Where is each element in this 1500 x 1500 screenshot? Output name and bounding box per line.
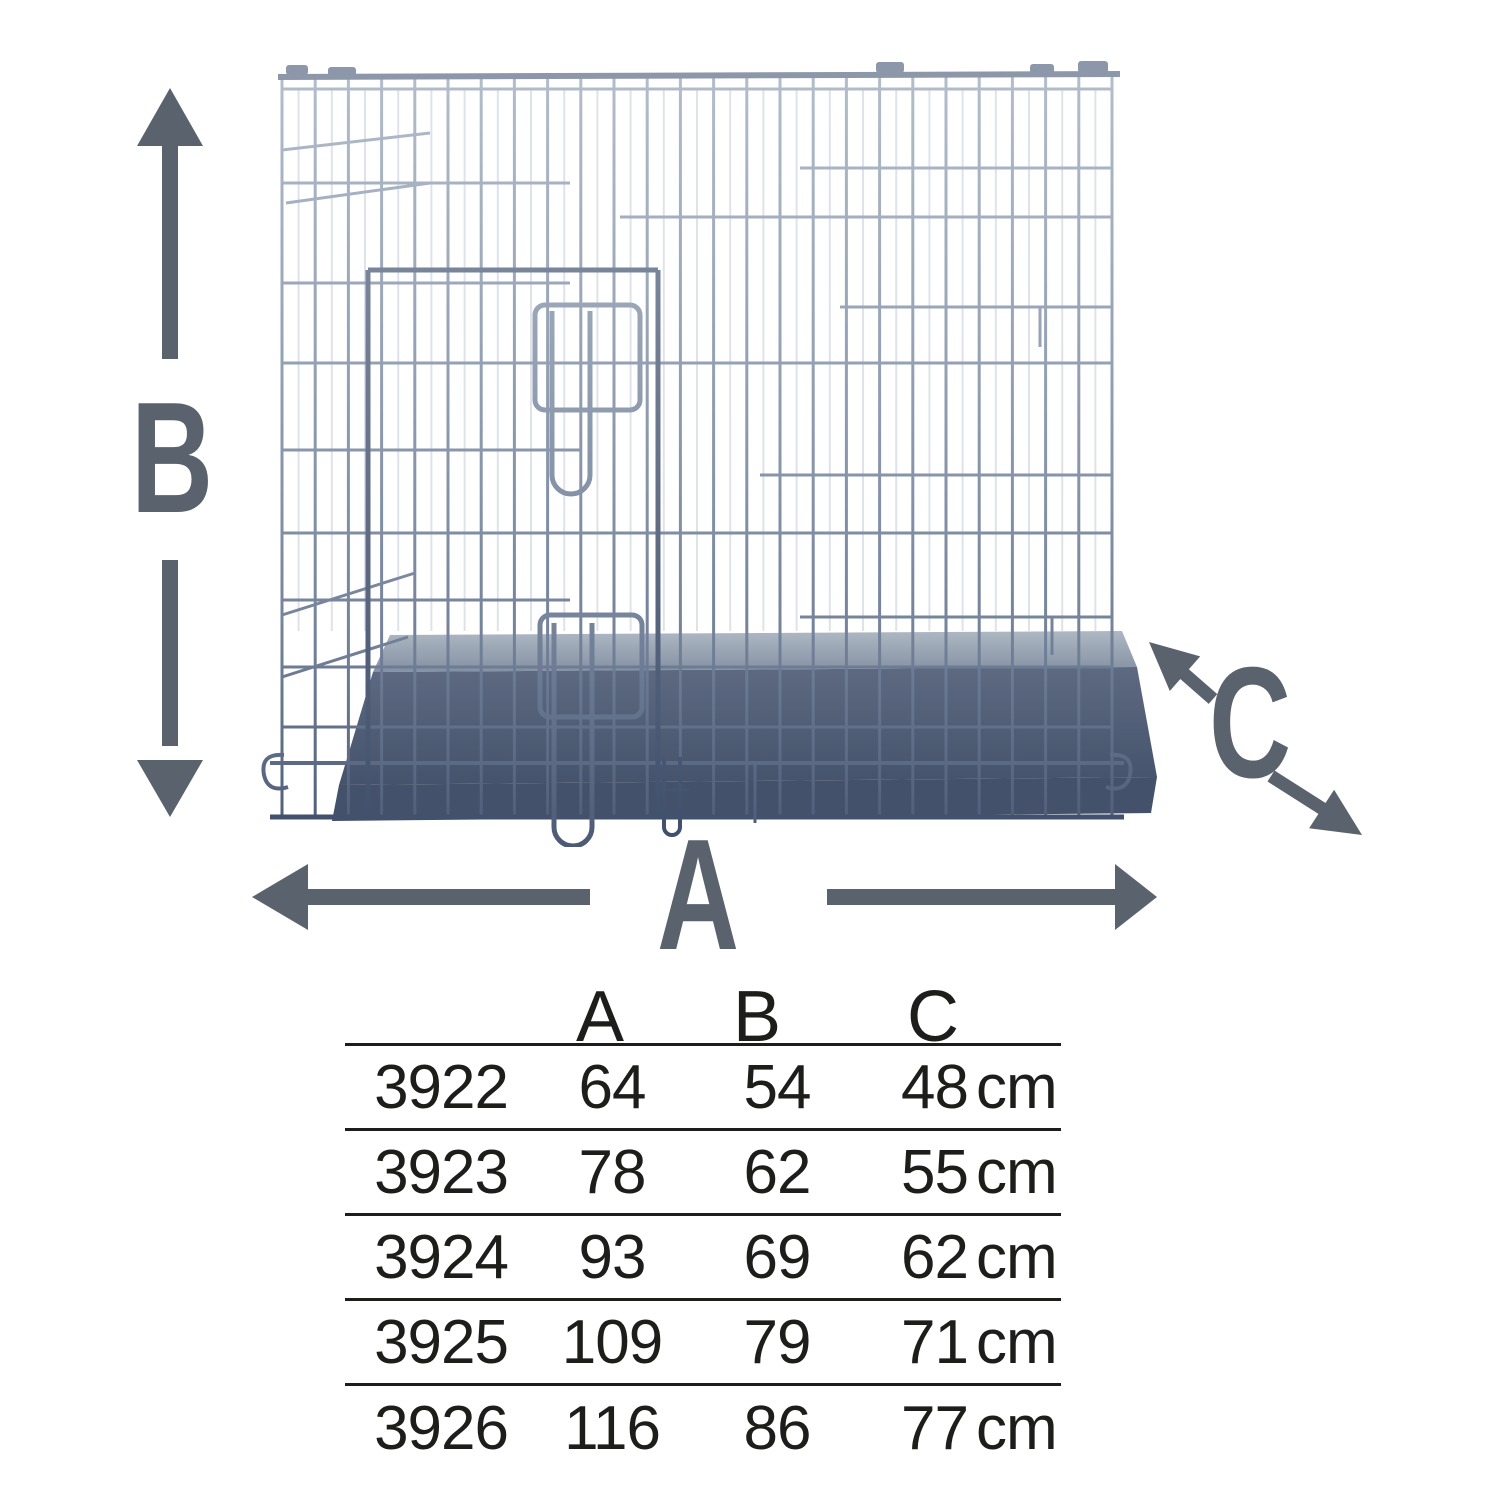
dim-c-value: 62 — [840, 1222, 968, 1293]
unit-label: cm — [968, 1137, 1061, 1208]
header-dim-c: C — [869, 976, 997, 1058]
table-row: 3924 93 69 62 cm — [345, 1216, 1061, 1301]
unit-label: cm — [968, 1307, 1061, 1378]
table-row: 3926 116 86 77 cm — [345, 1386, 1061, 1471]
unit-label: cm — [968, 1052, 1061, 1123]
dim-b-value: 62 — [714, 1137, 840, 1208]
dim-label-a: A — [628, 830, 768, 960]
dim-c-value: 48 — [840, 1052, 968, 1123]
a-arrow-left-shaft — [306, 889, 590, 905]
dim-a-value: 109 — [510, 1307, 714, 1378]
dim-a-value: 78 — [510, 1137, 714, 1208]
article-number: 3924 — [345, 1222, 510, 1293]
table-row: 3922 64 54 48 cm — [345, 1046, 1061, 1131]
dim-label-b: B — [102, 390, 242, 525]
b-arrow-up-head — [137, 88, 203, 146]
article-number: 3925 — [345, 1307, 510, 1378]
unit-label: cm — [968, 1222, 1061, 1293]
dim-c-value: 55 — [840, 1137, 968, 1208]
dim-b-value: 69 — [714, 1222, 840, 1293]
a-arrow-right-shaft — [827, 889, 1117, 905]
article-number: 3923 — [345, 1137, 510, 1208]
table-row: 3925 109 79 71 cm — [345, 1301, 1061, 1386]
a-arrow-right-head — [1115, 864, 1157, 930]
dim-b-value: 54 — [714, 1052, 840, 1123]
dim-a-value: 64 — [510, 1052, 714, 1123]
product-dimension-diagram: B A C A B C 3922 64 54 48 cm 3923 78 62 … — [0, 0, 1500, 1500]
b-arrow-down-shaft — [162, 560, 178, 746]
dim-b-value: 79 — [714, 1307, 840, 1378]
article-number: 3922 — [345, 1052, 510, 1123]
dim-a-value: 93 — [510, 1222, 714, 1293]
dim-a-value: 116 — [510, 1393, 714, 1464]
dim-c-value: 71 — [840, 1307, 968, 1378]
b-arrow-down-head — [137, 760, 203, 817]
a-arrow-left-head — [252, 864, 308, 930]
dim-c-value: 77 — [840, 1393, 968, 1464]
header-dim-a: A — [498, 976, 702, 1058]
size-table: A B C 3922 64 54 48 cm 3923 78 62 55 cm … — [345, 976, 1061, 1471]
dim-label-c: C — [1180, 655, 1320, 790]
b-arrow-up-shaft — [162, 144, 178, 359]
header-dim-b: B — [694, 976, 820, 1058]
table-row: 3923 78 62 55 cm — [345, 1131, 1061, 1216]
article-number: 3926 — [345, 1393, 510, 1464]
dim-b-value: 86 — [714, 1393, 840, 1464]
table-header-row: A B C — [345, 976, 1061, 1046]
unit-label: cm — [968, 1393, 1061, 1464]
